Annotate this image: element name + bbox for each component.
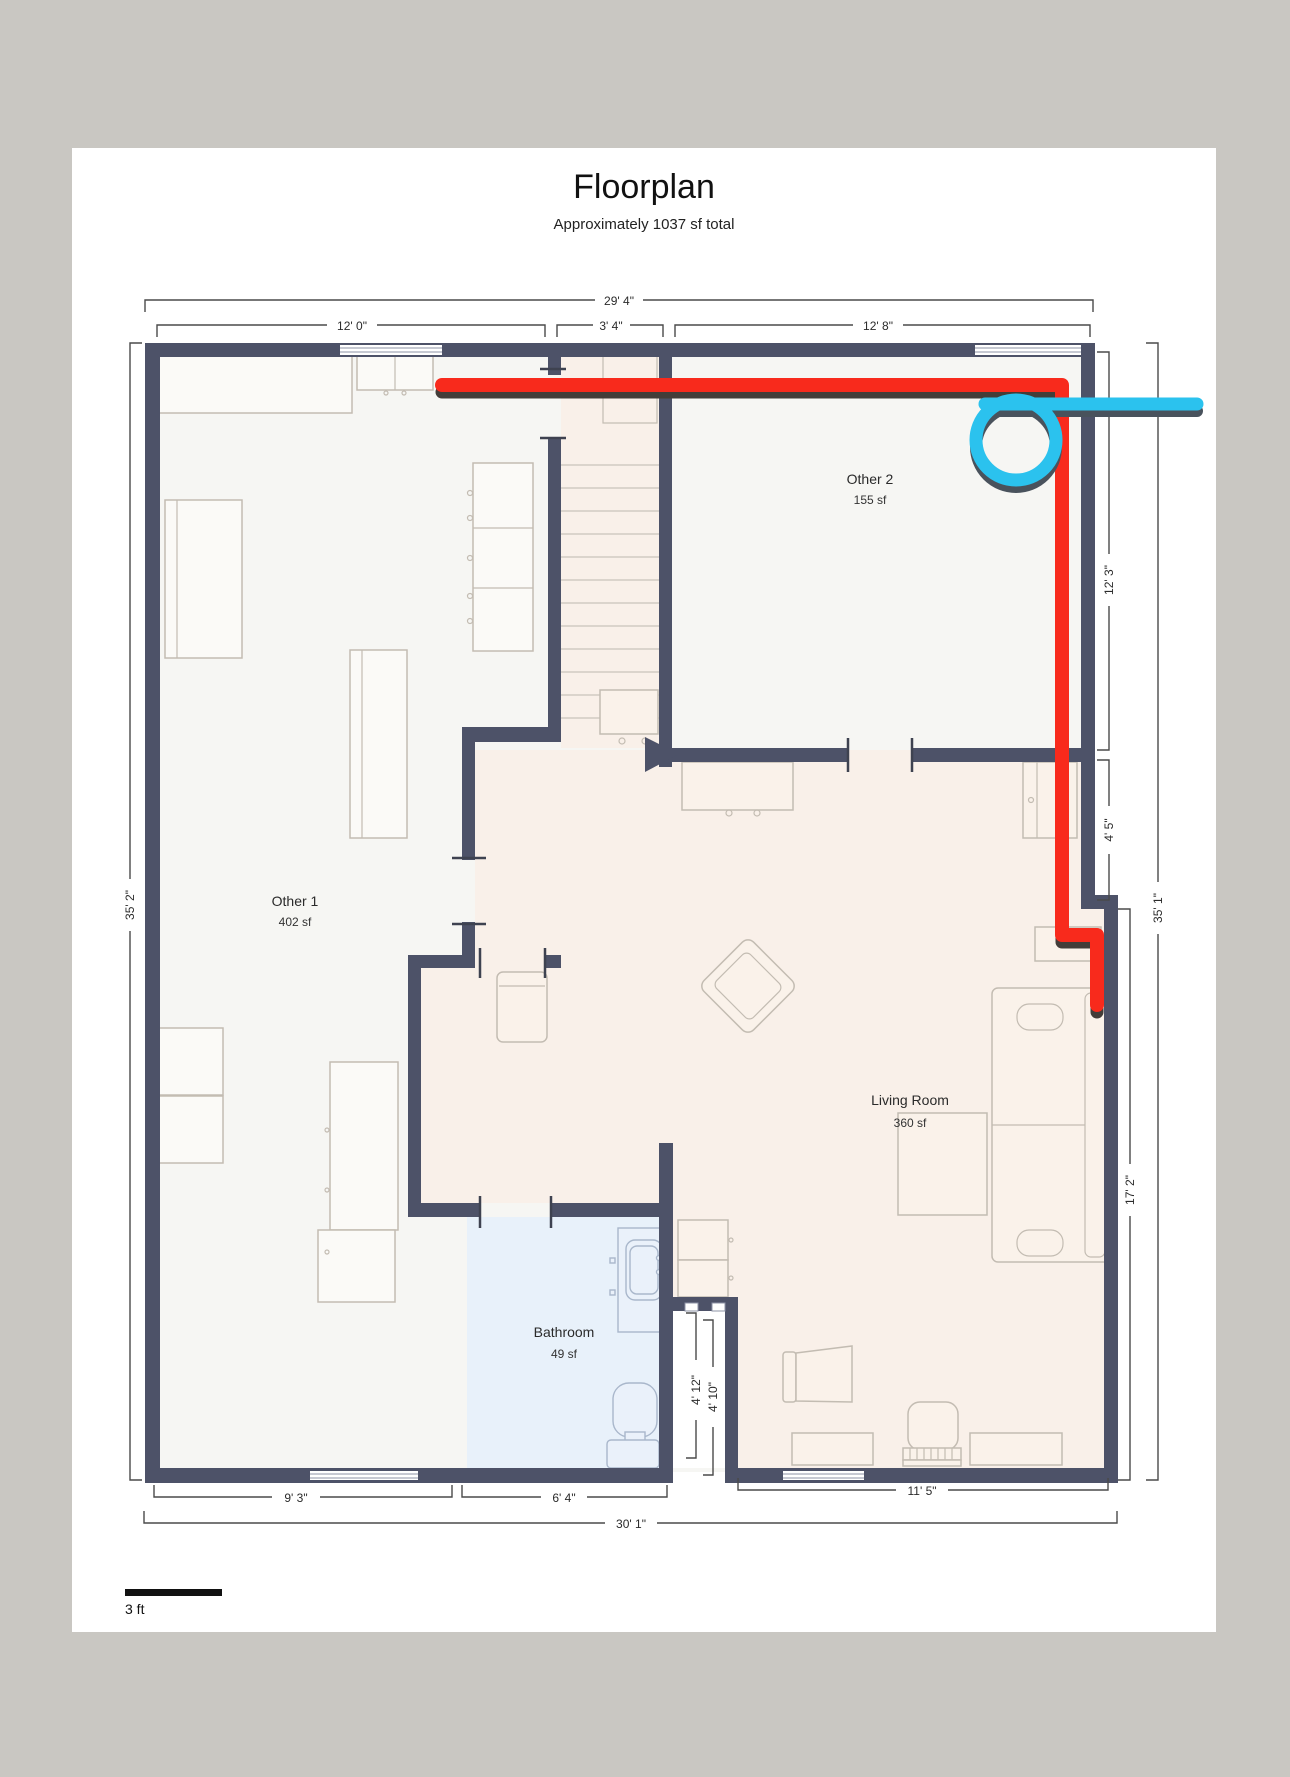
dim-text: 29' 4"	[604, 294, 634, 308]
piano-chair	[903, 1402, 961, 1466]
tv-on-stand	[783, 1346, 852, 1402]
wall-stair-left	[548, 437, 561, 742]
hall-chair	[497, 972, 547, 1042]
dim-text: 12' 8"	[863, 319, 893, 333]
wall-bath-top-b	[551, 1203, 672, 1217]
wall-right-upper	[1081, 343, 1095, 909]
dim-text: 12' 0"	[337, 319, 367, 333]
wall-below-stairs	[462, 727, 561, 742]
dim-text: 6' 4"	[552, 1491, 575, 1505]
wardrobe-tall	[330, 1062, 398, 1230]
page-subtitle: Approximately 1037 sf total	[554, 216, 735, 233]
wall-left	[145, 343, 160, 1483]
dim-text: 35' 2"	[123, 890, 137, 920]
wardrobe-short	[318, 1230, 395, 1302]
page-title: Floorplan	[573, 168, 715, 206]
room-label-other2: Other 2	[847, 471, 894, 487]
room-area-living: 360 sf	[894, 1116, 927, 1130]
window-top-other2	[975, 345, 1081, 355]
wall-other2-bottom-a	[672, 748, 848, 762]
dim-text: 4' 10"	[706, 1382, 720, 1412]
bench-right	[970, 1433, 1062, 1465]
wall-top	[145, 343, 1095, 357]
wall-hall-jog-b	[545, 955, 561, 968]
wall-bath-top-a	[420, 1203, 480, 1217]
dim-text: 12' 3"	[1102, 565, 1116, 595]
dim-text: 9' 3"	[284, 1491, 307, 1505]
dim-text: 17' 2"	[1123, 1175, 1137, 1205]
bench-left	[792, 1433, 873, 1465]
room-area-other2: 155 sf	[854, 493, 887, 507]
toilet	[607, 1383, 659, 1468]
room-area-other1: 402 sf	[279, 915, 312, 929]
dim-text: 4' 5"	[1102, 818, 1116, 841]
window-bottom-living	[783, 1471, 864, 1480]
floorplan-screenshot: Floorplan Approximately 1037 sf total	[0, 0, 1290, 1777]
window-bottom-other1	[310, 1471, 418, 1480]
wall-bath-right	[659, 1143, 673, 1468]
dim-text: 3' 4"	[599, 319, 622, 333]
window-top-other1	[340, 345, 442, 355]
room-label-other1: Other 1	[272, 893, 319, 909]
room-area-bathroom: 49 sf	[551, 1347, 578, 1361]
dim-text: 30' 1"	[616, 1517, 646, 1531]
scale-bar-label: 3 ft	[125, 1601, 145, 1617]
stair-base-cabinet	[600, 690, 658, 734]
wall-hall-left	[408, 955, 421, 1217]
wall-living-left	[725, 1300, 738, 1475]
dim-text: 11' 5"	[907, 1484, 936, 1498]
counter	[158, 352, 352, 413]
wall-right-lower	[1104, 895, 1118, 1483]
bookshelf	[473, 463, 533, 651]
scale-bar-rule	[125, 1589, 222, 1596]
room-label-living: Living Room	[871, 1092, 949, 1108]
wall-kitchen-left-a	[462, 727, 475, 860]
hall-cabinet-upper	[678, 1220, 728, 1260]
sofa	[992, 988, 1110, 1262]
room-label-bathroom: Bathroom	[534, 1324, 595, 1340]
desk-center	[350, 650, 407, 838]
hall-cabinet-lower	[678, 1260, 728, 1297]
wall-stair-right	[659, 343, 672, 767]
dim-text: 4' 12"	[689, 1375, 703, 1405]
dim-text: 35' 1"	[1151, 893, 1165, 923]
kitchen-counter	[682, 762, 793, 810]
